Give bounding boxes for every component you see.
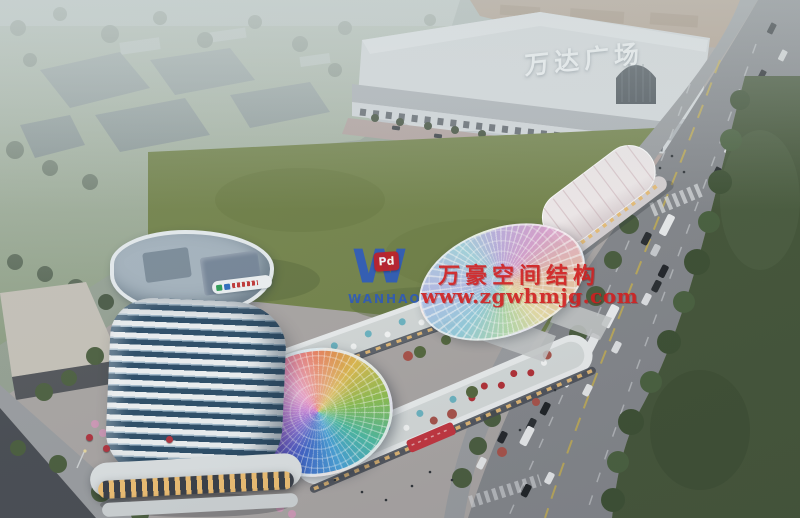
watermark-logo-badge: Pd <box>373 251 399 272</box>
logo-green-square <box>216 284 223 291</box>
red-umbrella <box>166 436 173 443</box>
roof-mechanical-unit <box>142 247 192 283</box>
watermark-brand: WANHAO <box>348 292 422 306</box>
red-umbrella <box>86 434 93 441</box>
tower-podium <box>90 458 302 516</box>
aerial-rendering: 万达广场 W Pd WANHAO 万豪空间结构 www.zgwhmjg.com <box>0 0 800 518</box>
logo-blue-square <box>224 283 231 290</box>
red-umbrella <box>103 445 110 452</box>
watermark-url: www.zgwhmjg.com <box>421 284 638 308</box>
tower-building <box>96 228 296 518</box>
tower-body-balcony-bands <box>104 296 288 480</box>
logo-red-characters <box>232 280 258 288</box>
